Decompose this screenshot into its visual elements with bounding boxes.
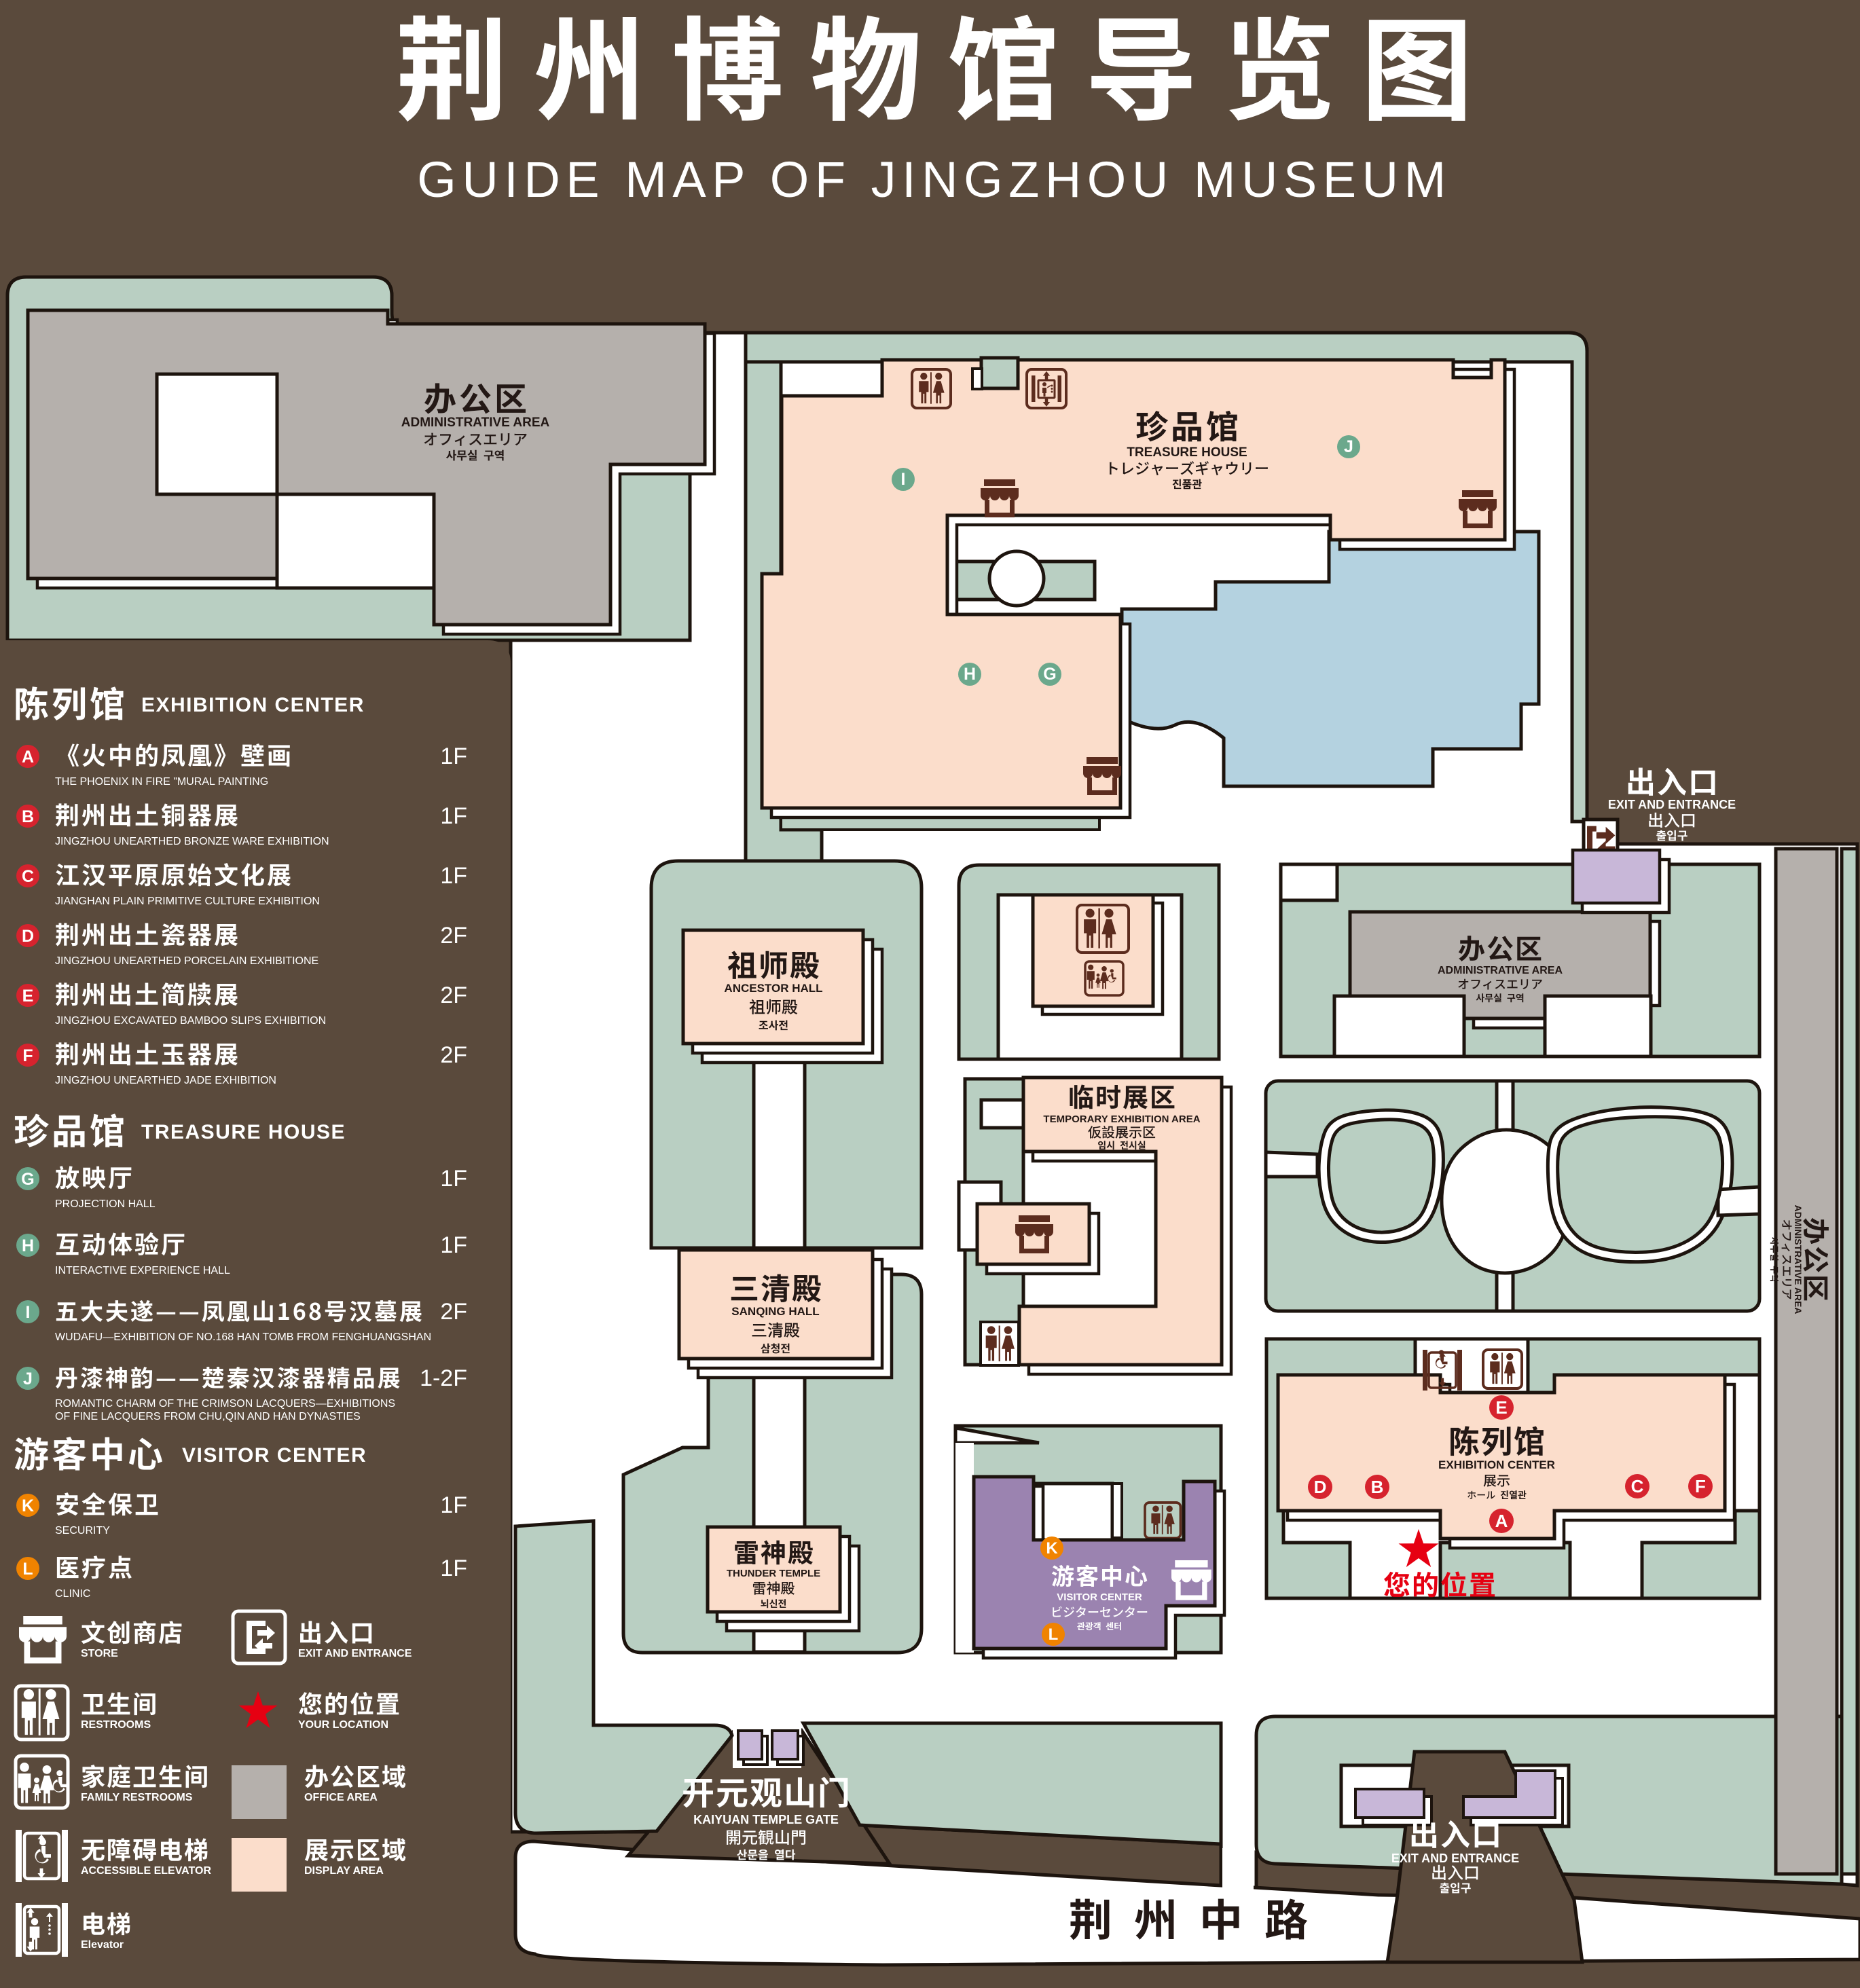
svg-text:2F: 2F <box>440 1042 467 1068</box>
svg-text:VISITOR CENTER: VISITOR CENTER <box>182 1444 367 1467</box>
svg-text:ADMINISTRATIVE AREA: ADMINISTRATIVE AREA <box>1793 1205 1804 1314</box>
svg-text:EXIT AND ENTRANCE: EXIT AND ENTRANCE <box>1608 798 1736 811</box>
svg-text:E: E <box>22 987 34 1006</box>
svg-text:FAMILY RESTROOMS: FAMILY RESTROOMS <box>81 1792 193 1803</box>
svg-text:H: H <box>22 1236 34 1255</box>
svg-text:ADMINISTRATIVE AREA: ADMINISTRATIVE AREA <box>401 416 550 430</box>
svg-text:B: B <box>1371 1477 1384 1497</box>
svg-text:2F: 2F <box>440 982 467 1008</box>
svg-text:GUIDE MAP OF JINGZHOU MUSEUM: GUIDE MAP OF JINGZHOU MUSEUM <box>417 151 1451 208</box>
svg-text:1F: 1F <box>440 743 467 769</box>
svg-text:PROJECTION HALL: PROJECTION HALL <box>55 1198 156 1210</box>
svg-text:1-2F: 1-2F <box>420 1365 467 1391</box>
svg-text:JINGZHOU EXCAVATED BAMBOO SLIP: JINGZHOU EXCAVATED BAMBOO SLIPS EXHIBITI… <box>55 1015 326 1027</box>
svg-text:C: C <box>22 867 34 886</box>
svg-text:ADMINISTRATIVE AREA: ADMINISTRATIVE AREA <box>1438 965 1563 976</box>
svg-text:WUDAFU—EXHIBITION OF NO.168 HA: WUDAFU—EXHIBITION OF NO.168 HAN TOMB FRO… <box>55 1331 431 1343</box>
svg-text:JINGZHOU UNEARTHED BRONZE WARE: JINGZHOU UNEARTHED BRONZE WARE EXHIBITIO… <box>55 836 329 847</box>
svg-text:G: G <box>1043 665 1056 684</box>
svg-text:L: L <box>1048 1625 1059 1644</box>
svg-text:VISITOR CENTER: VISITOR CENTER <box>1057 1591 1142 1603</box>
svg-text:D: D <box>1314 1477 1327 1497</box>
svg-text:C: C <box>1631 1476 1644 1496</box>
svg-text:JINGZHOU UNEARTHED PORCELAIN E: JINGZHOU UNEARTHED PORCELAIN EXHIBITIONE <box>55 955 318 967</box>
svg-text:F: F <box>22 1046 33 1065</box>
svg-text:KAIYUAN TEMPLE GATE: KAIYUAN TEMPLE GATE <box>693 1813 839 1826</box>
svg-text:2F: 2F <box>440 1299 467 1325</box>
svg-text:EXIT AND ENTRANCE: EXIT AND ENTRANCE <box>298 1648 412 1659</box>
svg-text:OFFICE AREA: OFFICE AREA <box>304 1792 378 1803</box>
svg-text:RESTROOMS: RESTROOMS <box>81 1719 151 1731</box>
svg-text:THUNDER TEMPLE: THUNDER TEMPLE <box>727 1568 820 1579</box>
svg-text:I: I <box>26 1303 31 1322</box>
svg-text:B: B <box>22 807 34 826</box>
svg-text:1F: 1F <box>440 1166 467 1192</box>
svg-text:ACCESSIBLE ELEVATOR: ACCESSIBLE ELEVATOR <box>81 1865 211 1877</box>
svg-text:SECURITY: SECURITY <box>55 1525 110 1536</box>
svg-text:TREASURE HOUSE: TREASURE HOUSE <box>1127 445 1247 460</box>
svg-text:JIANGHAN PLAIN PRIMITIVE CULTU: JIANGHAN PLAIN PRIMITIVE CULTURE EXHIBIT… <box>55 896 320 907</box>
svg-text:1F: 1F <box>440 803 467 829</box>
svg-text:SANQING HALL: SANQING HALL <box>731 1305 819 1318</box>
svg-text:JINGZHOU UNEARTHED JADE EXHIBI: JINGZHOU UNEARTHED JADE EXHIBITION <box>55 1075 276 1086</box>
svg-text:THE PHOENIX IN FIRE "MURAL PAI: THE PHOENIX IN FIRE "MURAL PAINTING <box>55 776 268 788</box>
svg-text:INTERACTIVE EXPERIENCE HALL: INTERACTIVE EXPERIENCE HALL <box>55 1265 230 1276</box>
svg-text:1F: 1F <box>440 1232 467 1258</box>
svg-text:G: G <box>21 1170 34 1189</box>
svg-text:EXHIBITION CENTER: EXHIBITION CENTER <box>141 694 365 716</box>
svg-text:1F: 1F <box>440 1556 467 1581</box>
svg-text:ROMANTIC CHARM OF THE CRIMSON: ROMANTIC CHARM OF THE CRIMSON LACQUERS—E… <box>55 1398 395 1410</box>
svg-text:1F: 1F <box>440 863 467 889</box>
svg-text:L: L <box>22 1560 33 1579</box>
svg-text:TEMPORARY EXHIBITION AREA: TEMPORARY EXHIBITION AREA <box>1043 1113 1200 1125</box>
svg-text:2F: 2F <box>440 923 467 949</box>
svg-text:DISPLAY AREA: DISPLAY AREA <box>304 1865 384 1877</box>
svg-text:A: A <box>22 748 34 767</box>
svg-text:D: D <box>22 927 34 946</box>
svg-text:E: E <box>1495 1397 1507 1418</box>
svg-text:STORE: STORE <box>81 1648 118 1659</box>
svg-text:H: H <box>964 665 976 684</box>
svg-text:K: K <box>1046 1539 1058 1558</box>
svg-text:A: A <box>1495 1511 1508 1531</box>
svg-text:OF FINE LACQUERS FROM CHU,QIN: OF FINE LACQUERS FROM CHU,QIN AND HAN DY… <box>55 1411 361 1422</box>
svg-text:CLINIC: CLINIC <box>55 1588 90 1600</box>
svg-text:J: J <box>23 1369 33 1388</box>
svg-text:F: F <box>1695 1476 1706 1496</box>
svg-text:TREASURE HOUSE: TREASURE HOUSE <box>141 1121 346 1143</box>
svg-text:EXIT AND ENTRANCE: EXIT AND ENTRANCE <box>1391 1852 1519 1865</box>
svg-text:I: I <box>901 470 906 489</box>
svg-text:ANCESTOR HALL: ANCESTOR HALL <box>724 982 822 995</box>
svg-text:YOUR LOCATION: YOUR LOCATION <box>298 1719 388 1731</box>
svg-text:1F: 1F <box>440 1492 467 1518</box>
svg-text:EXHIBITION CENTER: EXHIBITION CENTER <box>1438 1458 1555 1471</box>
svg-text:J: J <box>1344 437 1353 456</box>
svg-text:Elevator: Elevator <box>81 1939 124 1951</box>
svg-text:K: K <box>22 1496 34 1515</box>
